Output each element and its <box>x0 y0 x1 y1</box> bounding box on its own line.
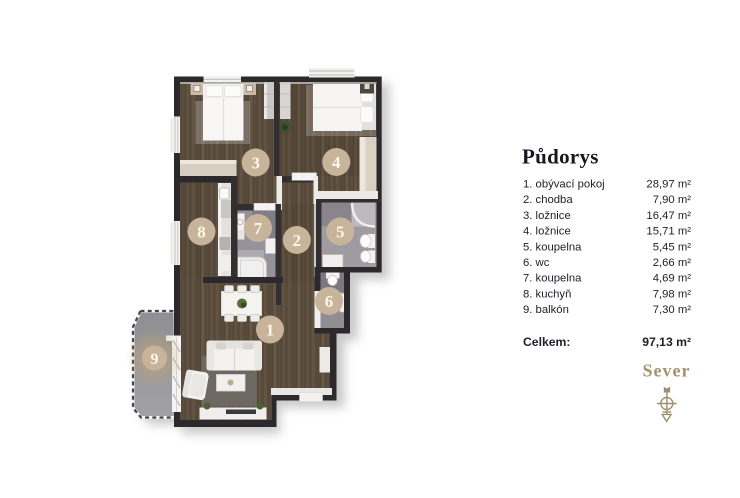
svg-text:16,47 m²: 16,47 m² <box>646 210 691 222</box>
svg-text:4,69 m²: 4,69 m² <box>653 273 692 285</box>
svg-text:8. kuchyň: 8. kuchyň <box>523 288 571 300</box>
svg-text:3: 3 <box>251 154 260 173</box>
svg-text:1. obývací pokoj: 1. obývací pokoj <box>523 179 605 191</box>
svg-text:8: 8 <box>197 223 206 242</box>
svg-text:Sever: Sever <box>643 361 691 381</box>
svg-text:9: 9 <box>151 351 159 368</box>
svg-text:1: 1 <box>266 321 275 340</box>
svg-text:5: 5 <box>336 223 345 242</box>
svg-text:7: 7 <box>254 219 263 238</box>
svg-text:Celkem:: Celkem: <box>523 335 570 349</box>
svg-text:7,30 m²: 7,30 m² <box>653 304 692 316</box>
svg-text:97,13 m²: 97,13 m² <box>642 335 691 349</box>
svg-text:2,66 m²: 2,66 m² <box>653 257 692 269</box>
svg-text:15,71 m²: 15,71 m² <box>646 226 691 238</box>
svg-text:6: 6 <box>325 292 334 311</box>
svg-text:7. koupelna: 7. koupelna <box>523 273 582 285</box>
svg-text:5,45 m²: 5,45 m² <box>653 241 692 253</box>
svg-text:7,90 m²: 7,90 m² <box>653 194 692 206</box>
svg-text:3. ložnice: 3. ložnice <box>523 210 571 222</box>
svg-text:4: 4 <box>332 153 341 172</box>
svg-text:4. ložnice: 4. ložnice <box>523 226 571 238</box>
svg-text:5. koupelna: 5. koupelna <box>523 241 582 253</box>
svg-text:Půdorys: Půdorys <box>522 145 599 169</box>
svg-text:9. balkón: 9. balkón <box>523 304 569 316</box>
svg-text:7,98 m²: 7,98 m² <box>653 288 692 300</box>
svg-text:6. wc: 6. wc <box>523 257 550 269</box>
svg-text:28,97 m²: 28,97 m² <box>646 179 691 191</box>
svg-text:2: 2 <box>293 231 302 250</box>
svg-text:2. chodba: 2. chodba <box>523 194 573 206</box>
